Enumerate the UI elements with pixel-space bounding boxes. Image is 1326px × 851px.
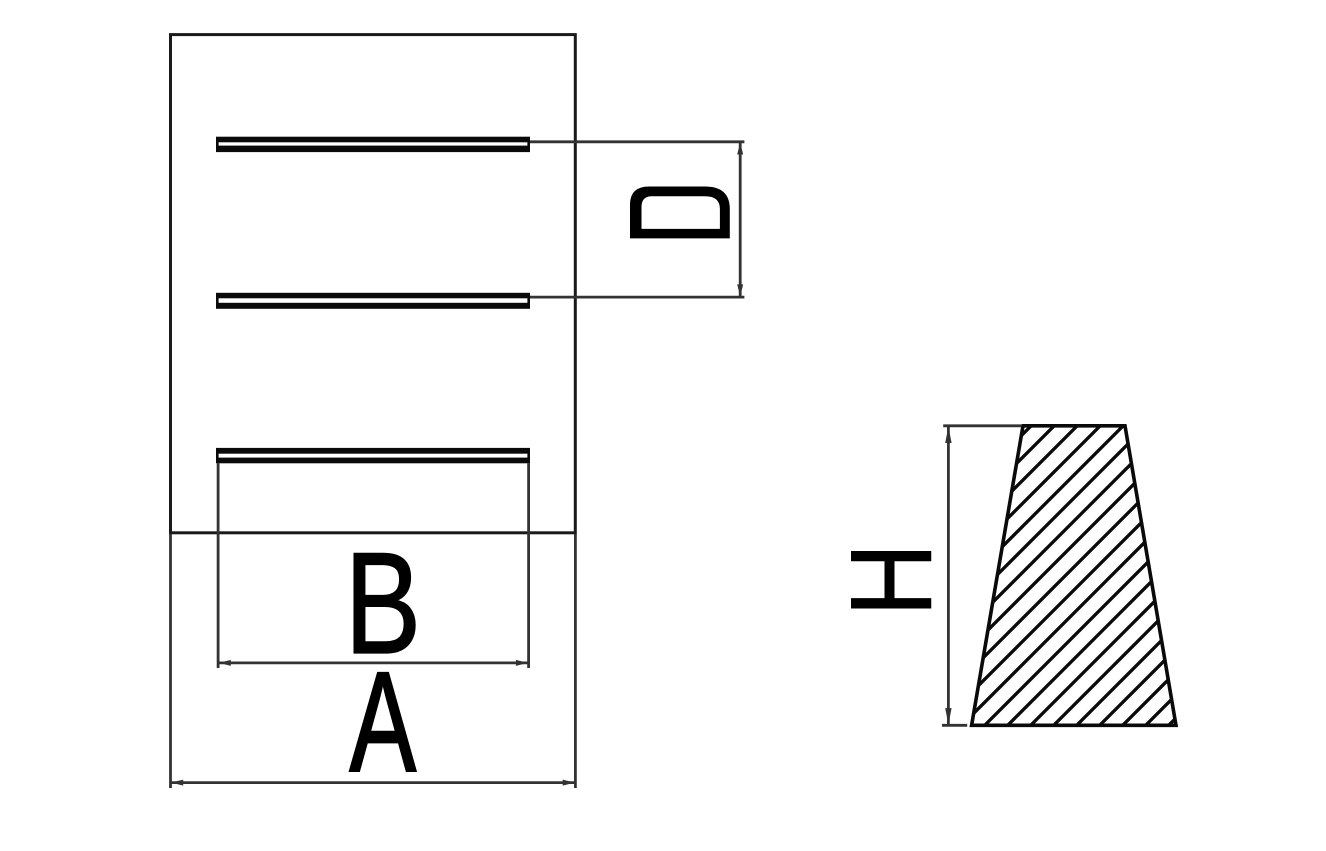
svg-text:A: A bbox=[349, 644, 416, 803]
svg-text:H: H bbox=[828, 543, 957, 616]
